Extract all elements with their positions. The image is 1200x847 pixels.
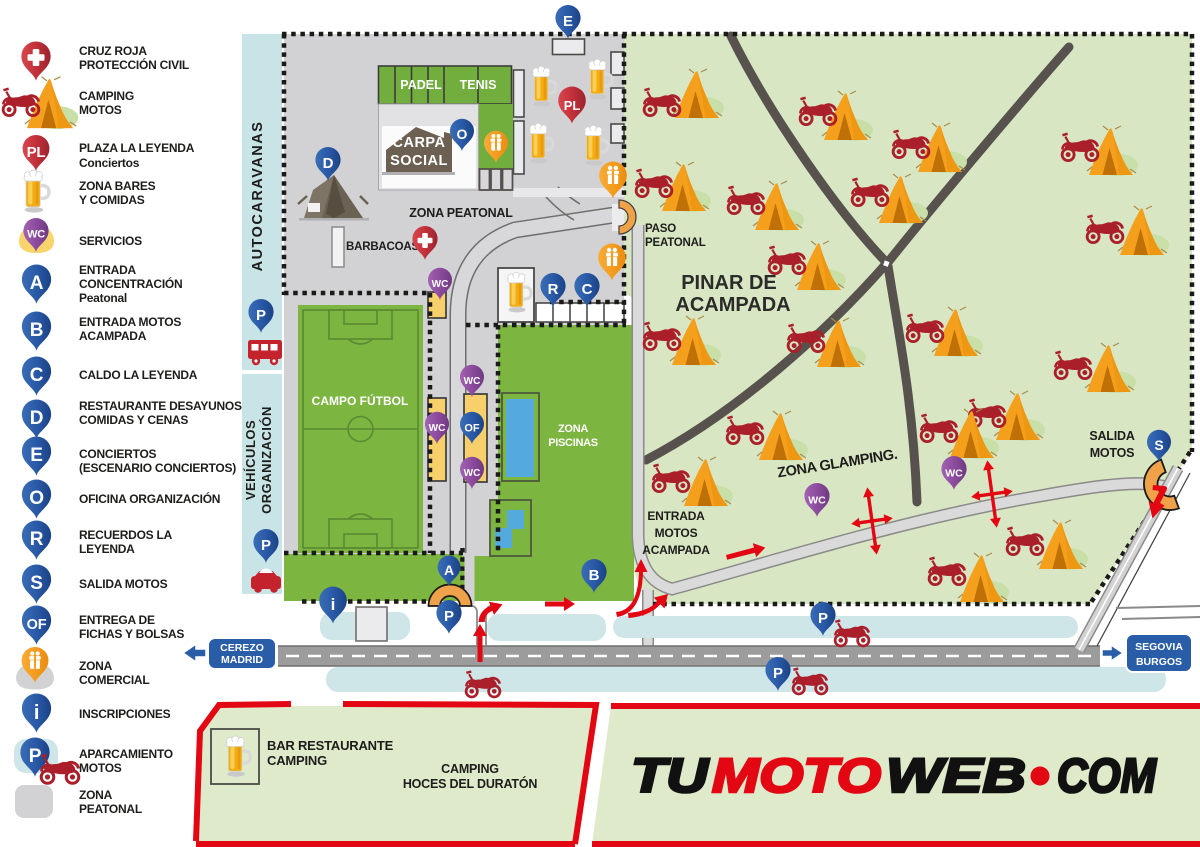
svg-text:ZONA BARES: ZONA BARES [79, 179, 156, 193]
svg-text:C: C [30, 365, 44, 386]
svg-text:RECUERDOS LA: RECUERDOS LA [79, 528, 173, 542]
svg-text:ENTRADA MOTOS: ENTRADA MOTOS [79, 315, 181, 329]
svg-text:ZONA PEATONAL: ZONA PEATONAL [409, 206, 513, 220]
svg-text:AUTOCARAVANAS: AUTOCARAVANAS [250, 121, 266, 272]
svg-text:BURGOS: BURGOS [1136, 656, 1182, 668]
svg-text:BARBACOAS: BARBACOAS [346, 241, 419, 253]
svg-text:CARPA: CARPA [393, 135, 446, 151]
svg-text:O: O [29, 488, 44, 509]
svg-text:PL: PL [564, 98, 581, 113]
svg-text:O: O [457, 126, 468, 142]
svg-text:P: P [773, 665, 783, 682]
svg-text:PASO: PASO [645, 223, 676, 235]
svg-text:A: A [444, 562, 454, 578]
svg-text:P: P [256, 307, 266, 324]
svg-text:ENTRADA: ENTRADA [647, 509, 705, 523]
svg-text:MOTOS: MOTOS [655, 526, 698, 540]
svg-text:ENTREGA DE: ENTREGA DE [79, 613, 155, 627]
svg-text:CEREZO: CEREZO [220, 642, 264, 654]
svg-text:MADRID: MADRID [221, 654, 263, 666]
svg-text:PL: PL [27, 144, 46, 161]
svg-text:P: P [29, 746, 42, 767]
svg-text:E: E [30, 445, 42, 466]
svg-text:SEGOVIA: SEGOVIA [1135, 641, 1183, 653]
svg-text:APARCAMIENTO: APARCAMIENTO [79, 747, 173, 761]
svg-text:WC: WC [432, 279, 449, 290]
svg-text:WEB: WEB [886, 750, 1026, 803]
svg-text:OFICINA ORGANIZACIÓN: OFICINA ORGANIZACIÓN [79, 491, 220, 506]
svg-text:CONCIERTOS: CONCIERTOS [79, 447, 157, 461]
svg-text:WC: WC [464, 468, 481, 479]
svg-text:COMIDAS Y CENAS: COMIDAS Y CENAS [79, 413, 188, 427]
svg-text:D: D [323, 155, 334, 172]
svg-text:B: B [30, 320, 43, 341]
svg-text:WC: WC [464, 376, 481, 387]
svg-text:MOTOS: MOTOS [1090, 446, 1135, 460]
svg-text:Conciertos: Conciertos [79, 156, 140, 170]
svg-text:ACAMPADA: ACAMPADA [79, 329, 147, 343]
svg-text:WC: WC [945, 468, 963, 480]
svg-text:S: S [30, 573, 42, 594]
svg-text:WC: WC [808, 495, 826, 507]
svg-text:ORGANIZACIÓN: ORGANIZACIÓN [259, 406, 274, 514]
svg-text:CAMPING: CAMPING [79, 89, 134, 103]
svg-text:COMERCIAL: COMERCIAL [79, 673, 149, 687]
svg-text:i: i [331, 595, 336, 614]
svg-text:RESTAURANTE DESAYUNOS,: RESTAURANTE DESAYUNOS, [79, 399, 245, 413]
svg-text:CRUZ ROJA: CRUZ ROJA [79, 44, 147, 58]
svg-text:SALIDA MOTOS: SALIDA MOTOS [79, 577, 168, 591]
svg-text:HOCES DEL DURATÓN: HOCES DEL DURATÓN [403, 776, 538, 791]
svg-text:S: S [1154, 437, 1163, 453]
svg-text:P: P [444, 608, 454, 625]
svg-text:R: R [548, 281, 559, 298]
svg-text:SOCIAL: SOCIAL [390, 153, 448, 169]
svg-text:CAMPING: CAMPING [267, 753, 327, 768]
svg-text:CAMPO FÚTBOL: CAMPO FÚTBOL [312, 393, 409, 408]
svg-text:ACAMPADA: ACAMPADA [642, 543, 710, 557]
svg-text:VEHÍCULOS: VEHÍCULOS [243, 420, 258, 500]
svg-text:SALIDA: SALIDA [1089, 429, 1135, 443]
svg-text:Y COMIDAS: Y COMIDAS [79, 193, 145, 207]
svg-text:PINAR DE: PINAR DE [681, 272, 777, 294]
svg-text:A: A [30, 273, 44, 294]
svg-text:BAR RESTAURANTE: BAR RESTAURANTE [267, 738, 394, 753]
svg-text:B: B [589, 567, 600, 584]
svg-text:PADEL: PADEL [400, 78, 442, 92]
svg-text:LEYENDA: LEYENDA [79, 542, 135, 556]
svg-text:PLAZA LA LEYENDA: PLAZA LA LEYENDA [79, 141, 195, 155]
svg-text:i: i [34, 702, 39, 724]
svg-text:ZONA: ZONA [79, 659, 113, 673]
svg-text:CAMPING: CAMPING [441, 762, 499, 776]
svg-text:MOTOS: MOTOS [79, 103, 122, 117]
svg-text:INSCRIPCIONES: INSCRIPCIONES [79, 707, 171, 721]
svg-text:Peatonal: Peatonal [79, 291, 127, 305]
svg-text:PEATONAL: PEATONAL [645, 237, 706, 249]
svg-text:ENTRADA: ENTRADA [79, 263, 136, 277]
svg-text:P: P [261, 537, 271, 554]
svg-text:D: D [30, 408, 43, 429]
svg-text:PROTECCIÓN CIVIL: PROTECCIÓN CIVIL [79, 57, 189, 72]
svg-text:PEATONAL: PEATONAL [79, 802, 142, 816]
svg-text:WC: WC [27, 229, 45, 241]
svg-text:ZONA: ZONA [79, 788, 113, 802]
svg-text:(ESCENARIO CONCIERTOS): (ESCENARIO CONCIERTOS) [79, 461, 236, 475]
svg-text:TENIS: TENIS [460, 78, 497, 92]
svg-text:WC: WC [429, 423, 446, 434]
svg-text:MOTOS: MOTOS [79, 761, 122, 775]
svg-text:P: P [818, 610, 828, 627]
svg-text:FICHAS Y BOLSAS: FICHAS Y BOLSAS [79, 627, 184, 641]
svg-text:R: R [30, 529, 44, 550]
svg-text:COM: COM [1057, 750, 1157, 803]
svg-text:CONCENTRACIÓN: CONCENTRACIÓN [79, 276, 182, 291]
svg-text:ZONA: ZONA [558, 423, 588, 435]
svg-text:SERVICIOS: SERVICIOS [79, 234, 142, 248]
svg-text:MOTO: MOTO [712, 750, 881, 803]
svg-text:E: E [563, 13, 573, 30]
svg-text:TU: TU [631, 750, 710, 803]
svg-text:ACAMPADA: ACAMPADA [675, 294, 790, 316]
svg-text:CALDO LA LEYENDA: CALDO LA LEYENDA [79, 368, 198, 382]
svg-text:C: C [582, 281, 593, 298]
svg-text:OF: OF [27, 617, 47, 633]
svg-text:PISCINAS: PISCINAS [548, 437, 598, 449]
svg-text:OF: OF [464, 423, 480, 435]
